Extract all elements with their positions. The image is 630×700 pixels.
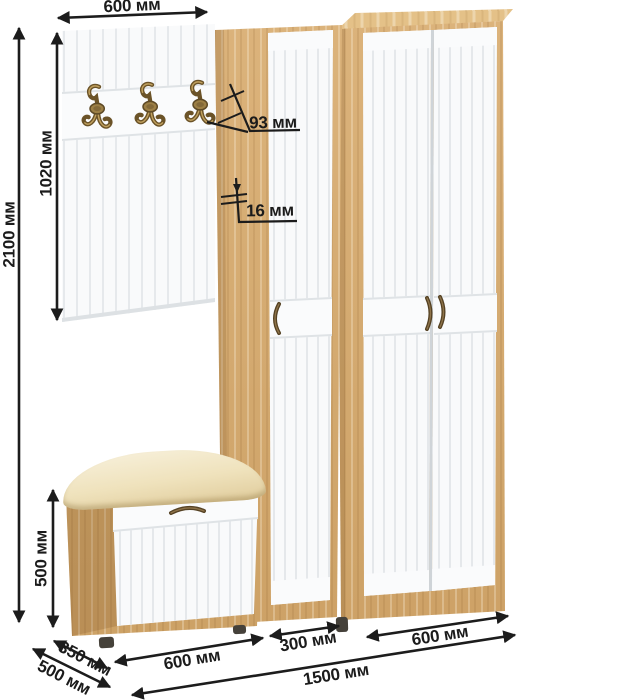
wardrobe-dimension-diagram: 600 мм 1020 мм 2100 мм 93 мм 16 мм 500 м…: [0, 0, 630, 700]
dim-label-top-width: 600 мм: [92, 0, 173, 16]
callout-16-tick: [221, 194, 247, 197]
dim-label-total-height: 2100 мм: [1, 193, 18, 277]
callout-93-leader2: [207, 122, 248, 132]
callout-93-tick: [218, 113, 241, 123]
dim-label-bench-height: 500 мм: [33, 518, 50, 600]
dim-label-panel-height: 1020 мм: [38, 122, 55, 206]
dim-label-panel-thickness: 16 мм: [243, 202, 297, 220]
dim-label-edge-width: 93 мм: [246, 114, 300, 132]
dimension-lines-layer: [0, 0, 630, 700]
callout-16-arrowhead: [233, 184, 241, 193]
